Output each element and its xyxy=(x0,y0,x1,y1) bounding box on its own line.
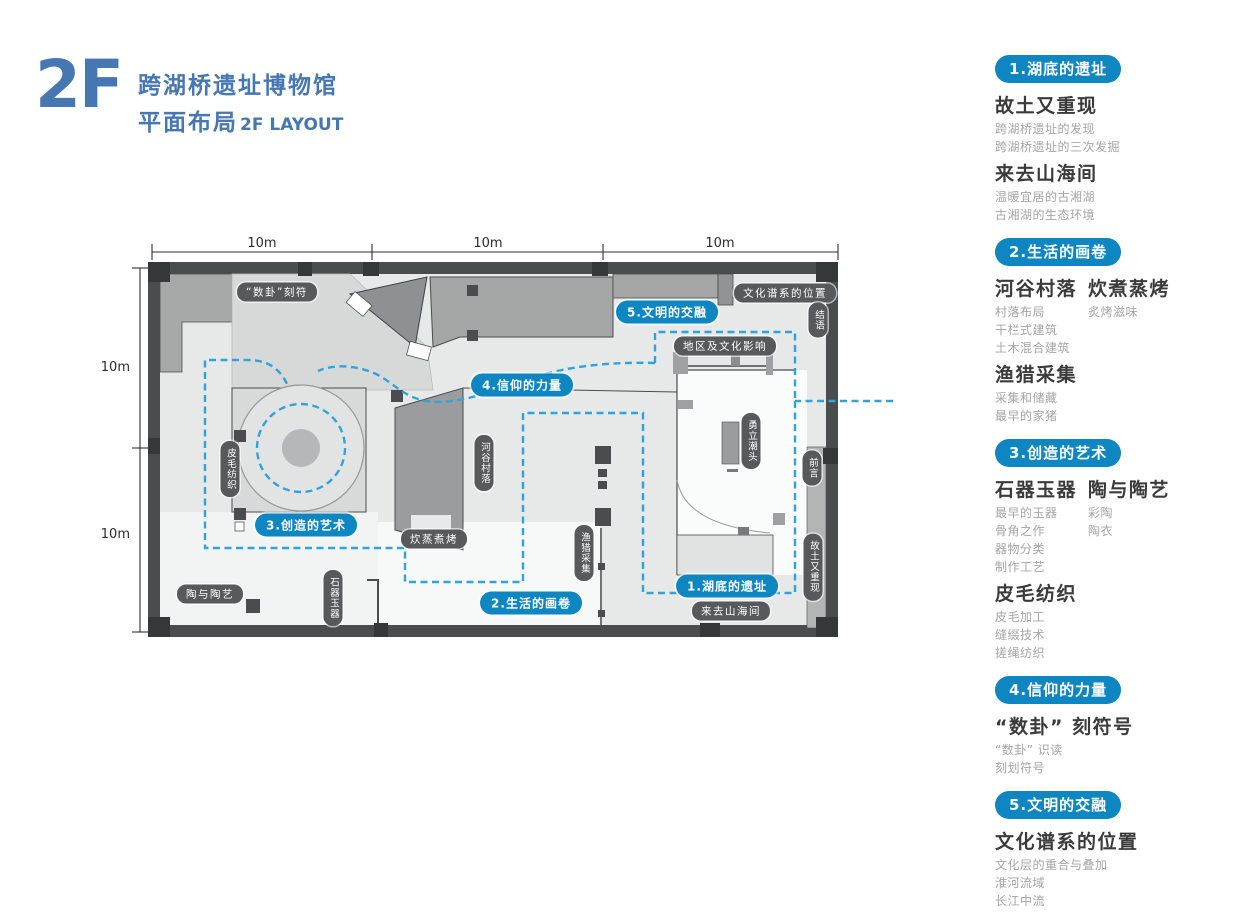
column: 炊煮蒸烤 炙烤滋味 xyxy=(1088,271,1170,321)
group-title: 河谷村落 xyxy=(995,274,1081,301)
area-label-fishing: 渔猎采集 xyxy=(575,525,594,581)
area-label-stone-jade: 石器玉器 xyxy=(324,570,343,626)
group-item: 皮毛加工 xyxy=(995,608,1247,626)
section-3-columns: 石器玉器 最早的玉器 骨角之作 器物分类 制作工艺 陶与陶艺 彩陶 陶衣 xyxy=(995,472,1247,576)
legend-section-3: 3.创造的艺术 石器玉器 最早的玉器 骨角之作 器物分类 制作工艺 陶与陶艺 彩… xyxy=(995,439,1247,662)
group-item: 古湘湖的生态环境 xyxy=(995,206,1247,224)
dim-top-2: 10m xyxy=(473,236,502,251)
area-label-village: 河谷村落 xyxy=(475,435,494,491)
spiral-core xyxy=(282,429,320,467)
lakebed-platform xyxy=(677,535,773,575)
group-item: 长江中流 xyxy=(995,892,1247,910)
dim-top-1: 10m xyxy=(247,236,276,251)
route-stop-5: 5.文明的交融 xyxy=(616,301,718,324)
column-bottomleft xyxy=(246,599,260,613)
group-title: 故土又重现 xyxy=(995,91,1247,118)
legend-section-5: 5.文明的交融 文化谱系的位置 文化层的重合与叠加 淮河流域 长江中流 xyxy=(995,791,1247,910)
group-item: 采集和储藏 xyxy=(995,389,1247,407)
floor-number: 2F xyxy=(35,52,122,118)
group-item: 干栏式建筑 xyxy=(995,321,1081,339)
area-label-mountains-seas: 来去山海间 xyxy=(692,602,770,621)
column-band-1 xyxy=(467,285,478,296)
group-item: 最早的家猪 xyxy=(995,407,1247,425)
section-2-badge: 2.生活的画卷 xyxy=(995,238,1121,266)
area-label-homeland: 故土又重现 xyxy=(804,534,823,601)
fixture-right-1 xyxy=(773,513,785,525)
route-stop-3: 3.创造的艺术 xyxy=(255,514,357,537)
section-1-badge: 1.湖底的遗址 xyxy=(995,55,1121,83)
column-mid-6 xyxy=(598,610,605,617)
column: 石器玉器 最早的玉器 骨角之作 器物分类 制作工艺 xyxy=(995,472,1081,576)
group-title: 来去山海间 xyxy=(995,159,1247,186)
group: 皮毛纺织 皮毛加工 缝缀技术 搓绳纺织 xyxy=(995,579,1247,662)
page-header: 2F 跨湖桥遗址博物馆 平面布局2F LAYOUT xyxy=(35,52,343,137)
group-item: 彩陶 xyxy=(1088,504,1170,522)
column: 陶与陶艺 彩陶 陶衣 xyxy=(1088,472,1170,540)
column-spiral-1 xyxy=(234,430,246,442)
group-item: 文化层的重合与叠加 xyxy=(995,856,1247,874)
group-item: 刻划符号 xyxy=(995,759,1247,777)
subtitle-cn: 平面布局 xyxy=(138,103,238,137)
village-doorway xyxy=(411,515,451,530)
page: { "header": { "floor": "2F", "museum": "… xyxy=(0,0,1260,831)
group: 文化谱系的位置 文化层的重合与叠加 淮河流域 长江中流 xyxy=(995,827,1247,910)
layout-subtitle: 平面布局2F LAYOUT xyxy=(138,103,343,137)
subtitle-en: 2F LAYOUT xyxy=(240,115,343,135)
group-title: 皮毛纺织 xyxy=(995,579,1247,606)
area-label-epilogue: 结语 xyxy=(809,303,828,338)
group-title: 文化谱系的位置 xyxy=(995,827,1247,854)
group-item: 跨湖桥遗址的三次发掘 xyxy=(995,138,1247,156)
group-title: 陶与陶艺 xyxy=(1088,475,1170,502)
column: 河谷村落 村落布局 干栏式建筑 土木混合建筑 xyxy=(995,271,1081,357)
area-label-shuga: “数卦”刻符 xyxy=(237,283,317,302)
group-item: 制作工艺 xyxy=(995,558,1081,576)
group-title: 石器玉器 xyxy=(995,475,1081,502)
area-label-cooking: 炊蒸煮烤 xyxy=(401,530,467,549)
area-label-culture-lineage: 文化谱系的位置 xyxy=(734,284,836,303)
group-title: “数卦” 刻符号 xyxy=(995,712,1247,739)
column-mid-3 xyxy=(598,481,607,489)
legend: 1.湖底的遗址 故土又重现 跨湖桥遗址的发现 跨湖桥遗址的三次发掘 来去山海间 … xyxy=(995,55,1247,924)
column-mid-5 xyxy=(598,563,605,570)
section-3-badge: 3.创造的艺术 xyxy=(995,439,1121,467)
exhibit-case-tide-base xyxy=(727,469,738,472)
group-item: 温暖宜居的古湘湖 xyxy=(995,188,1247,206)
group-item: 最早的玉器 xyxy=(995,504,1081,522)
group-item: 陶衣 xyxy=(1088,522,1170,540)
group: “数卦” 刻符号 “数卦” 识读 刻划符号 xyxy=(995,712,1247,777)
group-item: 骨角之作 xyxy=(995,522,1081,540)
column-spiral-2 xyxy=(234,508,246,520)
group-item: 淮河流域 xyxy=(995,874,1247,892)
column-mid-2 xyxy=(598,469,607,477)
dim-left-1: 10m xyxy=(101,360,130,375)
section-4-badge: 4.信仰的力量 xyxy=(995,676,1121,704)
area-label-preface: 前言 xyxy=(803,451,822,486)
room-topband xyxy=(430,277,613,347)
group-title: 渔猎采集 xyxy=(995,360,1247,387)
legend-section-4: 4.信仰的力量 “数卦” 刻符号 “数卦” 识读 刻划符号 xyxy=(995,676,1247,777)
group-item: 村落布局 xyxy=(995,303,1081,321)
column-mid-1 xyxy=(595,446,611,464)
group-title: 炊煮蒸烤 xyxy=(1088,274,1170,301)
route-stop-2: 2.生活的画卷 xyxy=(480,592,582,615)
exhibit-case-tide xyxy=(722,422,739,464)
column-mid-4 xyxy=(595,508,611,526)
lakebed-stub xyxy=(678,400,693,409)
group-item: 缝缀技术 xyxy=(995,626,1247,644)
legend-section-1: 1.湖底的遗址 故土又重现 跨湖桥遗址的发现 跨湖桥遗址的三次发掘 来去山海间 … xyxy=(995,55,1247,224)
title-block: 跨湖桥遗址博物馆 平面布局2F LAYOUT xyxy=(138,66,343,137)
area-label-pottery: 陶与陶艺 xyxy=(177,585,243,604)
group: 渔猎采集 采集和储藏 最早的家猪 xyxy=(995,360,1247,425)
column-village xyxy=(391,390,403,402)
group-item: 搓绳纺织 xyxy=(995,644,1247,662)
column-band-2 xyxy=(467,330,478,341)
group-item: 跨湖桥遗址的发现 xyxy=(995,120,1247,138)
section-5-badge: 5.文明的交融 xyxy=(995,791,1121,819)
group-item: 土木混合建筑 xyxy=(995,339,1081,357)
group-item: “数卦” 识读 xyxy=(995,741,1247,759)
route-stop-4: 4.信仰的力量 xyxy=(471,374,573,397)
area-label-tide: 勇立潮头 xyxy=(742,413,761,469)
room-topband-ext xyxy=(613,274,718,298)
dim-top-3: 10m xyxy=(705,236,734,251)
section-2-columns: 河谷村落 村落布局 干栏式建筑 土木混合建筑 炊煮蒸烤 炙烤滋味 xyxy=(995,271,1247,357)
fixture-right-2 xyxy=(738,527,749,535)
dim-left-2: 10m xyxy=(101,527,130,542)
area-label-fur-weaving: 皮毛纺织 xyxy=(221,441,240,497)
area-label-region-influence: 地区及文化影响 xyxy=(674,337,776,356)
legend-section-2: 2.生活的画卷 河谷村落 村落布局 干栏式建筑 土木混合建筑 炊煮蒸烤 炙烤滋味… xyxy=(995,238,1247,425)
museum-title: 跨湖桥遗址博物馆 xyxy=(138,66,343,100)
group-item: 器物分类 xyxy=(995,540,1081,558)
wall-stub xyxy=(718,274,733,305)
group-item: 炙烤滋味 xyxy=(1088,303,1170,321)
route-stop-1: 1.湖底的遗址 xyxy=(676,575,778,598)
column-spiral-white xyxy=(235,522,244,531)
group: 故土又重现 跨湖桥遗址的发现 跨湖桥遗址的三次发掘 来去山海间 温暖宜居的古湘湖… xyxy=(995,91,1247,224)
